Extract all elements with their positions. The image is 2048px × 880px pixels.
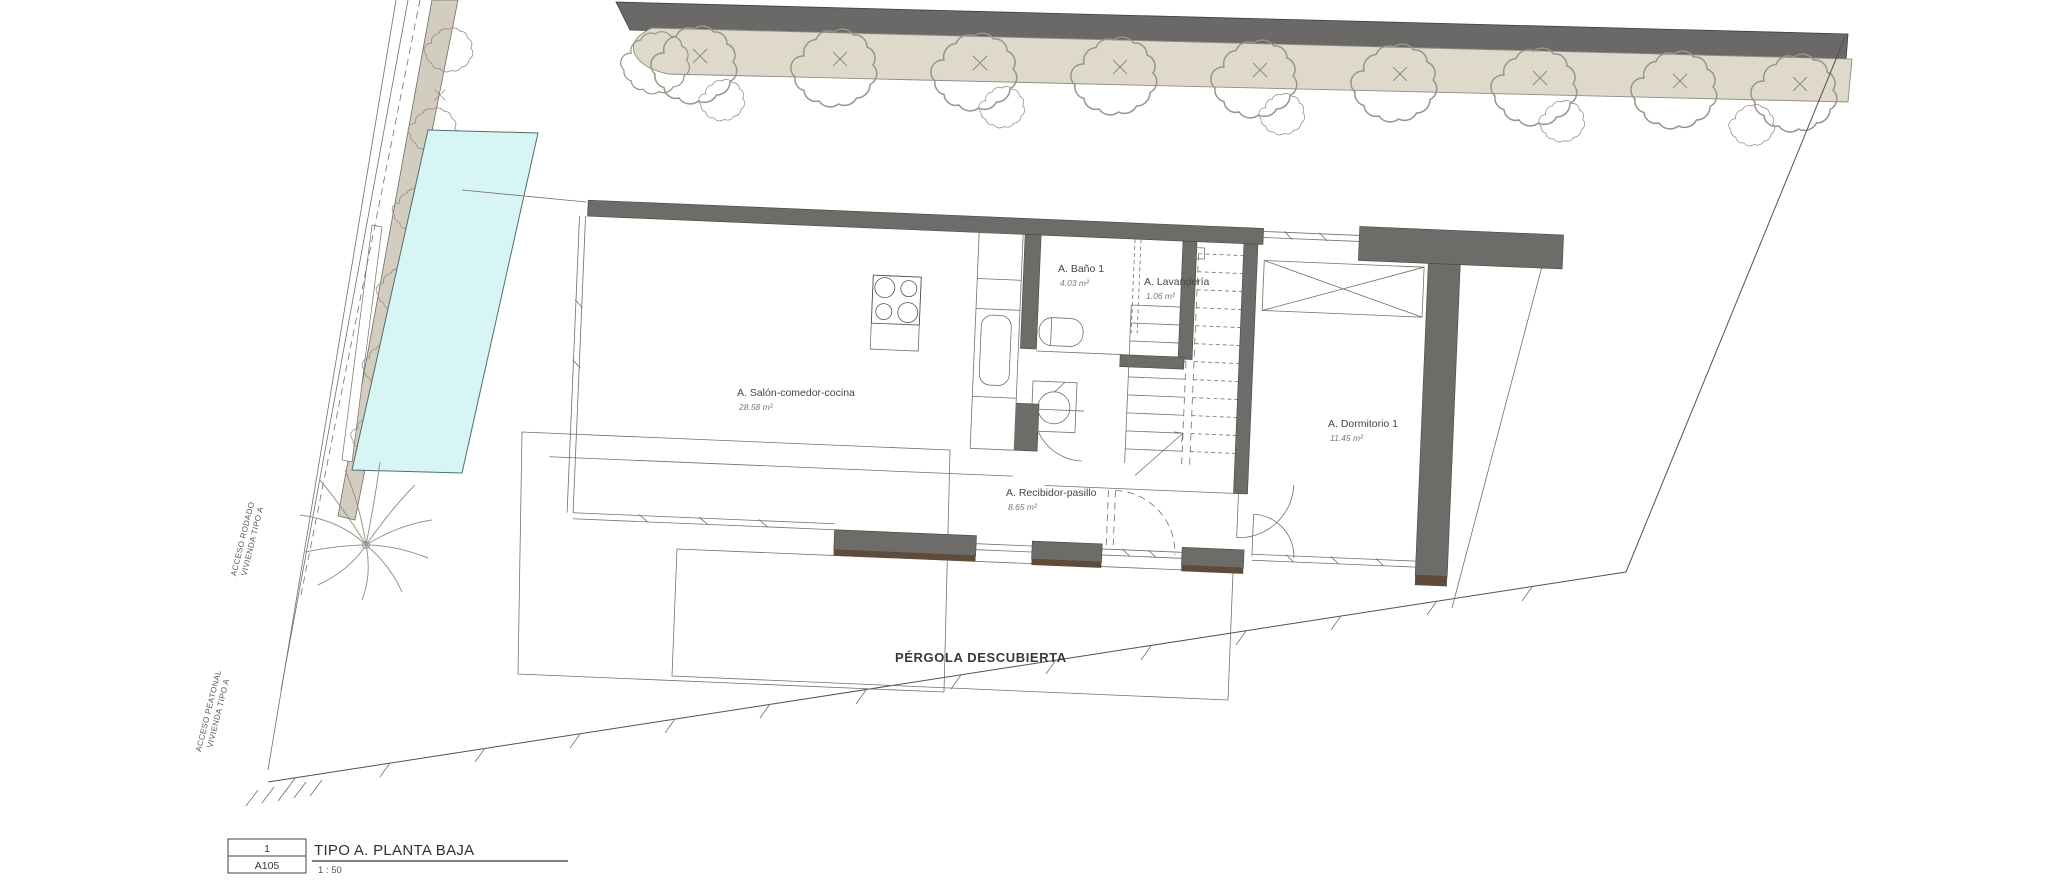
pergola-label: PÉRGOLA DESCUBIERTA [895, 650, 1067, 665]
room-label-dormitorio: A. Dormitorio 1 [1328, 418, 1398, 430]
window-top-gap [1263, 230, 1359, 242]
access-road-label: ACCESO RODADO VIVIENDA TIPO A [229, 501, 266, 580]
room-label-salon: A. Salón-comedor-cocina [737, 387, 855, 399]
site-surroundings [246, 0, 1852, 806]
boundary-hatch [246, 587, 1532, 806]
pergola-outline [672, 549, 1233, 700]
wall-bath-laundry-dashed [1131, 239, 1141, 333]
bath-bottom-line [1036, 351, 1130, 355]
wall-hall-bottom-right [1181, 547, 1244, 568]
view-scale: 1 : 50 [318, 865, 342, 876]
room-labels: A. Salón-comedor-cocina 28.58 m² A. Baño… [737, 263, 1398, 665]
floor-plan-page: A. Salón-comedor-cocina 28.58 m² A. Baño… [0, 0, 2048, 880]
room-area-bano: 4.03 m² [1060, 278, 1090, 288]
palm-tree-icon [300, 462, 432, 600]
window-bedroom-bottom [1252, 553, 1416, 567]
site-line-secondary [1452, 255, 1545, 608]
view-number: 1 [264, 843, 270, 855]
title-block: 1 A105 TIPO A. PLANTA BAJA 1 : 50 [228, 839, 568, 876]
view-title: TIPO A. PLANTA BAJA [314, 842, 474, 859]
bedroom-door-arc [1252, 514, 1296, 558]
window-living-left [566, 216, 586, 513]
toilet-tank-line [1051, 318, 1052, 346]
room-label-bano: A. Baño 1 [1058, 263, 1104, 275]
room-area-dormitorio: 11.45 m² [1330, 433, 1364, 443]
hall-sliding-door-dashed [1106, 490, 1178, 555]
stairs-treads-lower [1125, 305, 1189, 465]
window-rail-living-hall [976, 544, 1032, 552]
room-label-recibidor: A. Recibidor-pasillo [1006, 487, 1097, 499]
floor-plan-svg: A. Salón-comedor-cocina 28.58 m² A. Baño… [0, 0, 2048, 880]
room-area-salon: 28.58 m² [738, 402, 774, 412]
kitchen-column [970, 233, 1023, 451]
wall-bedroom-top [1358, 226, 1563, 269]
room-label-lavanderia: A. Lavandería [1144, 276, 1210, 288]
wall-hall-bottom-left [1032, 541, 1103, 562]
stairs-up-arrow [1135, 430, 1183, 477]
site-boundary-bottom [268, 572, 1626, 782]
wall-top-main [588, 200, 1264, 244]
cooktop-icon [870, 275, 921, 351]
bath-door-arc [1032, 409, 1084, 461]
house [546, 193, 1564, 591]
window-hall [1102, 548, 1182, 558]
toilet-icon [1039, 317, 1084, 347]
sheet-number: A105 [255, 860, 280, 872]
porch-edge-line [549, 457, 1013, 476]
window-living-bottom [573, 512, 835, 530]
wood-sill-bedroom [1415, 575, 1447, 586]
room-area-lavanderia: 1.06 m² [1146, 291, 1176, 301]
room-area-recibidor: 8.65 m² [1008, 502, 1038, 512]
wall-kitchen-bath [1020, 234, 1041, 349]
access-pedestrian-label: ACCESO PEATONAL VIVIENDA TIPO A [194, 669, 233, 755]
wall-stairs-right [1233, 244, 1257, 494]
closet [1262, 260, 1424, 317]
